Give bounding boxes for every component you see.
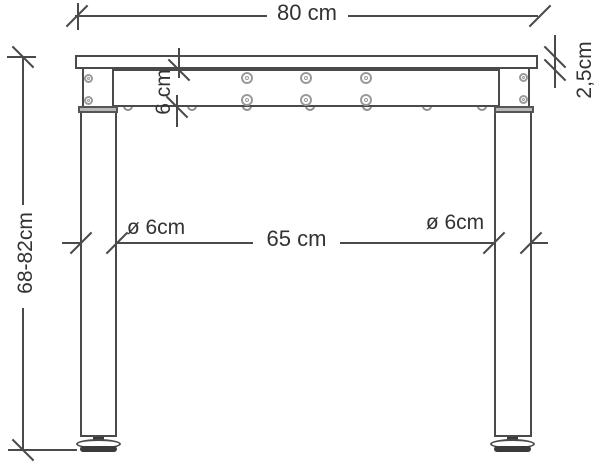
dim-label-leg-span: 65 cm: [253, 226, 340, 252]
dim-height-line-upper: [22, 57, 24, 205]
tabletop: [75, 55, 538, 69]
right-leg-collar: [494, 106, 534, 113]
dim-thickness-line: [554, 35, 556, 88]
dim-width-line-left: [75, 15, 267, 17]
dim-width-line-right: [348, 15, 538, 17]
screw-icon: [241, 94, 253, 106]
screw-icon: [519, 73, 528, 82]
left-foot-base: [80, 446, 117, 452]
left-leg-collar: [78, 106, 118, 113]
right-foot-base: [494, 446, 531, 452]
dim-label-leg-diameter-right: ø 6cm: [419, 211, 491, 235]
screw-icon: [84, 96, 93, 105]
dim-label-height-range: 68-82cm: [14, 198, 36, 308]
screw-icon: [519, 95, 528, 104]
dim-height-ext-bottom: [8, 449, 77, 451]
dim-frame-line-lower: [176, 95, 178, 127]
screw-icon: [300, 72, 312, 84]
dim-span-line-right: [340, 242, 494, 244]
left-leg-lower: [80, 112, 117, 437]
screw-icon: [360, 94, 372, 106]
dim-height-line-lower: [22, 308, 24, 450]
screw-icon: [241, 72, 253, 84]
dim-label-tabletop-thickness: 2,5cm: [573, 30, 595, 110]
dim-span-stub-right: [531, 242, 548, 244]
screw-icon: [84, 74, 93, 83]
dim-frame-line-upper: [178, 48, 180, 78]
technical-drawing-table: 80 cm 2,5cm 6 cm 68-82cm 65 cm ø 6cm ø 6…: [0, 0, 600, 464]
right-leg-lower: [494, 112, 532, 437]
screw-icon: [360, 72, 372, 84]
dim-label-leg-diameter-left: ø 6cm: [120, 216, 192, 240]
dim-label-tabletop-width: 80 cm: [267, 0, 347, 26]
dim-span-line-left: [117, 242, 253, 244]
dim-label-frame-height: 6 cm: [152, 57, 174, 127]
screw-icon: [300, 94, 312, 106]
